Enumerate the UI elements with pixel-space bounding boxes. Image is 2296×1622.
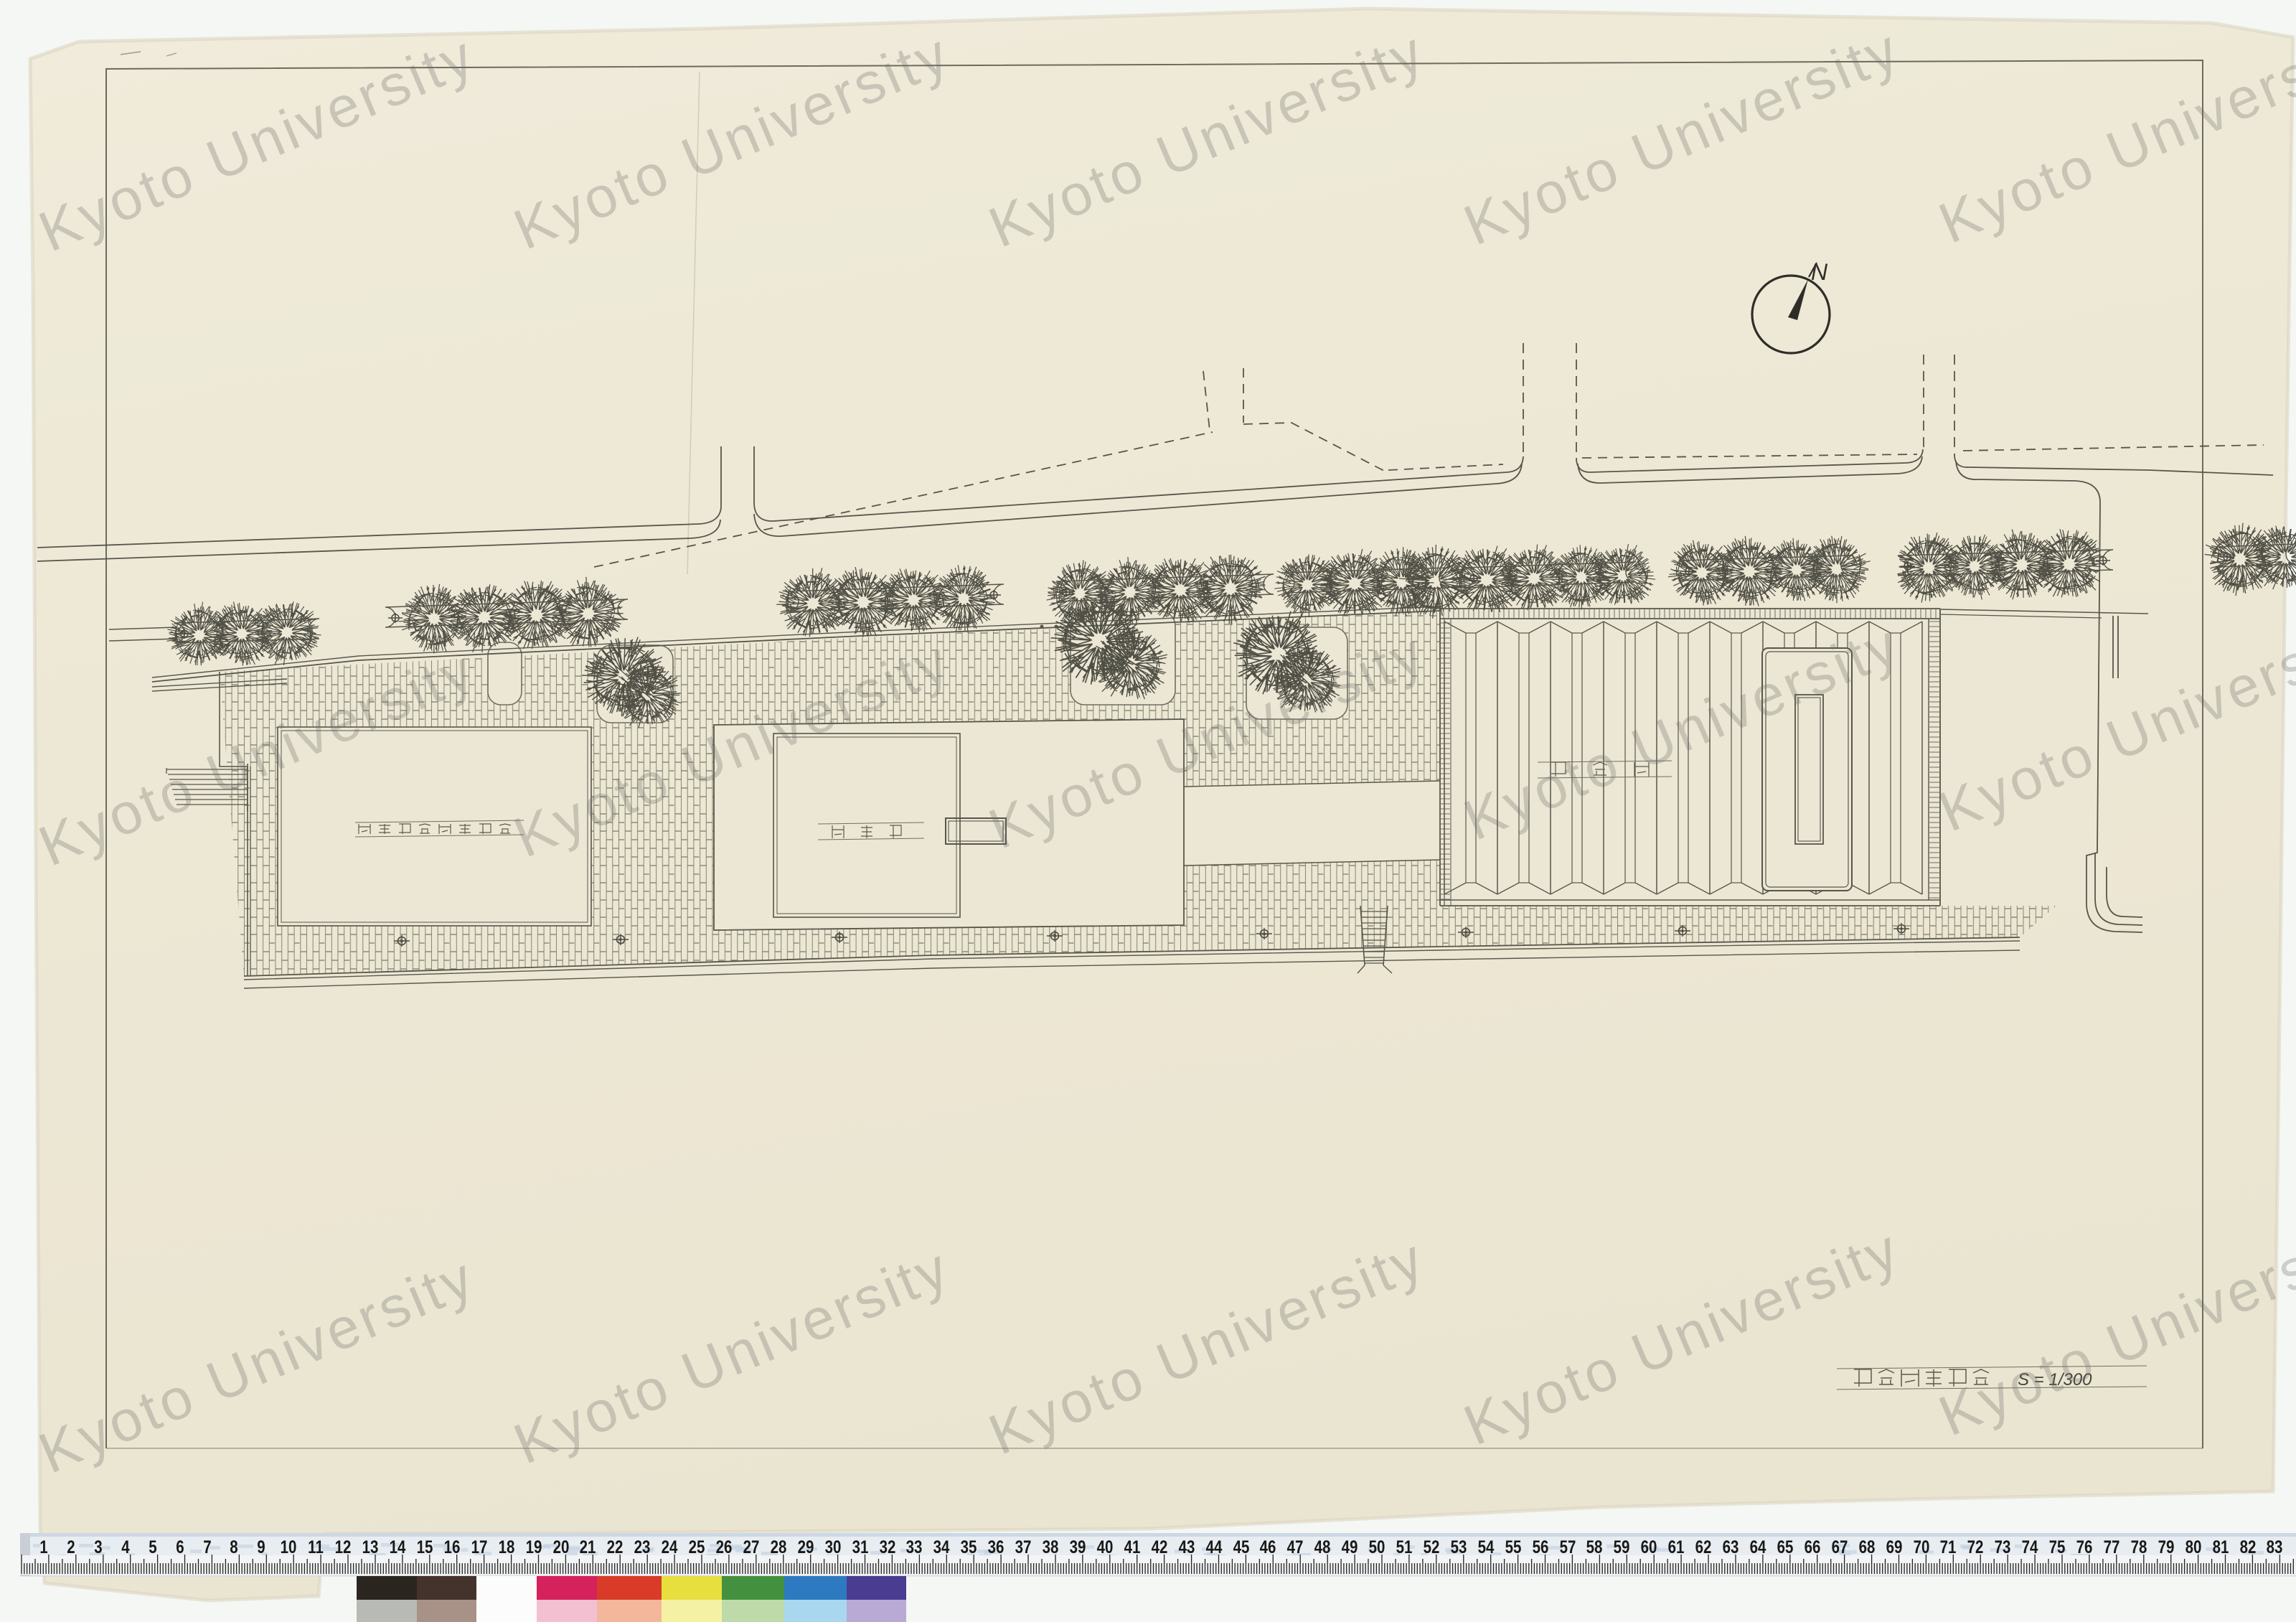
svg-text:46: 46 [1260,1537,1276,1557]
svg-text:17: 17 [471,1537,488,1557]
svg-text:44: 44 [1206,1537,1223,1557]
svg-text:62: 62 [1695,1537,1712,1557]
svg-text:7: 7 [203,1537,211,1557]
svg-text:74: 74 [2022,1537,2038,1557]
svg-text:48: 48 [1314,1537,1331,1557]
svg-text:9: 9 [257,1537,265,1557]
svg-text:N: N [1811,259,1828,285]
svg-text:2: 2 [67,1537,75,1557]
svg-text:13: 13 [362,1537,379,1557]
svg-text:82: 82 [2240,1537,2257,1557]
svg-text:67: 67 [1832,1537,1848,1557]
svg-text:47: 47 [1287,1537,1304,1557]
svg-text:42: 42 [1152,1537,1168,1557]
svg-text:75: 75 [2049,1537,2066,1557]
svg-text:31: 31 [852,1537,869,1557]
svg-text:34: 34 [933,1537,950,1557]
svg-text:80: 80 [2186,1537,2202,1557]
svg-text:77: 77 [2104,1537,2120,1557]
svg-text:54: 54 [1478,1537,1495,1557]
svg-text:39: 39 [1070,1537,1086,1557]
svg-text:15: 15 [417,1537,433,1557]
svg-text:81: 81 [2213,1537,2229,1557]
svg-text:51: 51 [1396,1537,1413,1557]
svg-text:24: 24 [662,1537,678,1557]
svg-text:12: 12 [335,1537,352,1557]
svg-text:57: 57 [1560,1537,1576,1557]
svg-text:37: 37 [1015,1537,1032,1557]
svg-text:83: 83 [2267,1537,2283,1557]
svg-text:5: 5 [149,1537,157,1557]
svg-text:41: 41 [1124,1537,1141,1557]
svg-text:14: 14 [390,1537,406,1557]
svg-text:56: 56 [1533,1537,1549,1557]
svg-text:65: 65 [1777,1537,1794,1557]
svg-text:3: 3 [94,1537,102,1557]
svg-text:8: 8 [230,1537,238,1557]
svg-text:10: 10 [281,1537,297,1557]
svg-text:27: 27 [743,1537,760,1557]
svg-text:4: 4 [121,1537,130,1557]
svg-text:35: 35 [961,1537,977,1557]
svg-text:64: 64 [1750,1537,1766,1557]
svg-text:16: 16 [444,1537,461,1557]
svg-text:55: 55 [1505,1537,1522,1557]
svg-text:33: 33 [906,1537,923,1557]
svg-text:26: 26 [716,1537,733,1557]
svg-text:69: 69 [1886,1537,1903,1557]
svg-text:49: 49 [1342,1537,1358,1557]
svg-text:1: 1 [39,1537,48,1557]
svg-text:66: 66 [1805,1537,1821,1557]
svg-text:45: 45 [1233,1537,1250,1557]
svg-text:59: 59 [1614,1537,1630,1557]
svg-text:11: 11 [308,1537,324,1557]
svg-text:53: 53 [1451,1537,1467,1557]
svg-text:60: 60 [1641,1537,1657,1557]
svg-text:21: 21 [580,1537,596,1557]
svg-text:72: 72 [1967,1537,1984,1557]
svg-text:78: 78 [2131,1537,2147,1557]
svg-text:79: 79 [2158,1537,2175,1557]
svg-text:52: 52 [1424,1537,1440,1557]
svg-text:38: 38 [1043,1537,1059,1557]
svg-text:63: 63 [1723,1537,1739,1557]
svg-text:18: 18 [499,1537,515,1557]
svg-text:32: 32 [880,1537,896,1557]
svg-text:19: 19 [526,1537,542,1557]
svg-text:23: 23 [634,1537,651,1557]
svg-text:25: 25 [689,1537,705,1557]
svg-text:43: 43 [1179,1537,1195,1557]
svg-text:50: 50 [1369,1537,1385,1557]
svg-text:70: 70 [1914,1537,1930,1557]
svg-text:36: 36 [988,1537,1004,1557]
svg-text:76: 76 [2076,1537,2093,1557]
svg-text:58: 58 [1586,1537,1603,1557]
svg-text:40: 40 [1097,1537,1114,1557]
svg-text:6: 6 [176,1537,184,1557]
svg-text:73: 73 [1995,1537,2011,1557]
svg-text:68: 68 [1859,1537,1876,1557]
svg-text:61: 61 [1668,1537,1685,1557]
svg-text:20: 20 [553,1537,570,1557]
svg-text:22: 22 [607,1537,624,1557]
svg-text:30: 30 [825,1537,842,1557]
svg-text:71: 71 [1940,1537,1957,1557]
svg-text:29: 29 [798,1537,814,1557]
svg-text:28: 28 [771,1537,787,1557]
